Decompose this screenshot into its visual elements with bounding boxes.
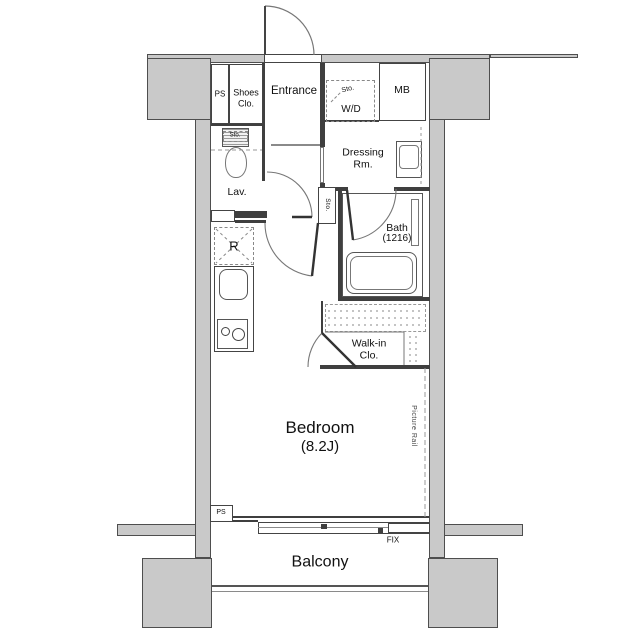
- wall-hall-bottom: [235, 220, 266, 223]
- toilet-bowl: [225, 147, 247, 178]
- label-picture-rail: Picture Rail: [409, 405, 417, 447]
- bedroom-door-arc: [265, 223, 312, 276]
- label-refrigerator: R: [229, 238, 238, 253]
- walkin-door-arc: [308, 333, 322, 367]
- wall-closet-bottom: [320, 365, 430, 369]
- label-washer-dryer: W/D: [341, 104, 360, 116]
- label-ps-bottom: PS: [216, 509, 225, 517]
- wall-closet-left: [321, 301, 323, 333]
- dressing-pocket-door: [320, 147, 324, 183]
- walkin-hanger-band: [325, 304, 426, 332]
- label-storage-above-toilet: Sto.: [230, 132, 241, 139]
- wall-right: [429, 119, 445, 558]
- partition-entrance-dressing: [320, 63, 325, 147]
- lavatory-door-arc: [267, 172, 312, 217]
- wing-wall-left: [117, 524, 196, 536]
- bath-shelf: [411, 199, 419, 246]
- fix-window-frame: [388, 523, 430, 533]
- bedroom-sill-line: [233, 516, 429, 518]
- label-bedroom-name: Bedroom: [286, 418, 355, 438]
- pillar-bottom-right: [428, 558, 498, 628]
- washbasin-bowl: [399, 145, 419, 169]
- pillar-top-right: [429, 58, 490, 120]
- balcony-railing-inner: [212, 591, 428, 592]
- stove-burner-small: [221, 327, 230, 336]
- entrance-step-line: [271, 144, 320, 146]
- label-bedroom-size: (8.2J): [301, 438, 339, 456]
- label-shoes-closet: Shoes Clo.: [233, 87, 259, 108]
- label-storage-hall: Sto.: [323, 198, 331, 212]
- kitchen-sink: [219, 269, 248, 300]
- neighbor-wall-line: [490, 54, 578, 58]
- window-handle-right: [378, 528, 383, 533]
- wall-bath-bottom: [338, 297, 430, 301]
- bedroom-door-leaf: [312, 223, 318, 276]
- wall-left: [195, 119, 211, 558]
- entrance-door-arc: [265, 6, 314, 55]
- stove-burner-large: [232, 328, 245, 341]
- entrance-threshold: [264, 54, 323, 63]
- label-ps-top: PS: [215, 89, 226, 98]
- partition-lav-hall: [262, 125, 265, 181]
- floor-plan: PS Shoes Clo. Entrance Sto. W/D MB Dress…: [0, 0, 640, 640]
- label-fix-window: FIX: [387, 535, 399, 544]
- label-walk-in-closet: Walk-in Clo.: [352, 338, 387, 363]
- wall-dressing-bottom-b: [394, 187, 430, 191]
- label-lavatory: Lav.: [227, 186, 246, 198]
- balcony-railing-outer: [212, 585, 428, 587]
- kitchen-duct-box: [211, 210, 235, 222]
- window-handle-left: [321, 524, 327, 529]
- pillar-top-left: [147, 58, 211, 120]
- label-meter-box: MB: [394, 84, 410, 96]
- label-bath-size: (1216): [383, 233, 412, 245]
- walkin-hanger-hatch-cols: [410, 336, 416, 362]
- pillar-bottom-left: [142, 558, 212, 628]
- wing-wall-right: [444, 524, 523, 536]
- bathtub-inner: [350, 256, 413, 290]
- label-dressing-room: Dressing Rm.: [342, 147, 383, 172]
- label-entrance: Entrance: [271, 85, 317, 99]
- label-balcony: Balcony: [292, 554, 349, 573]
